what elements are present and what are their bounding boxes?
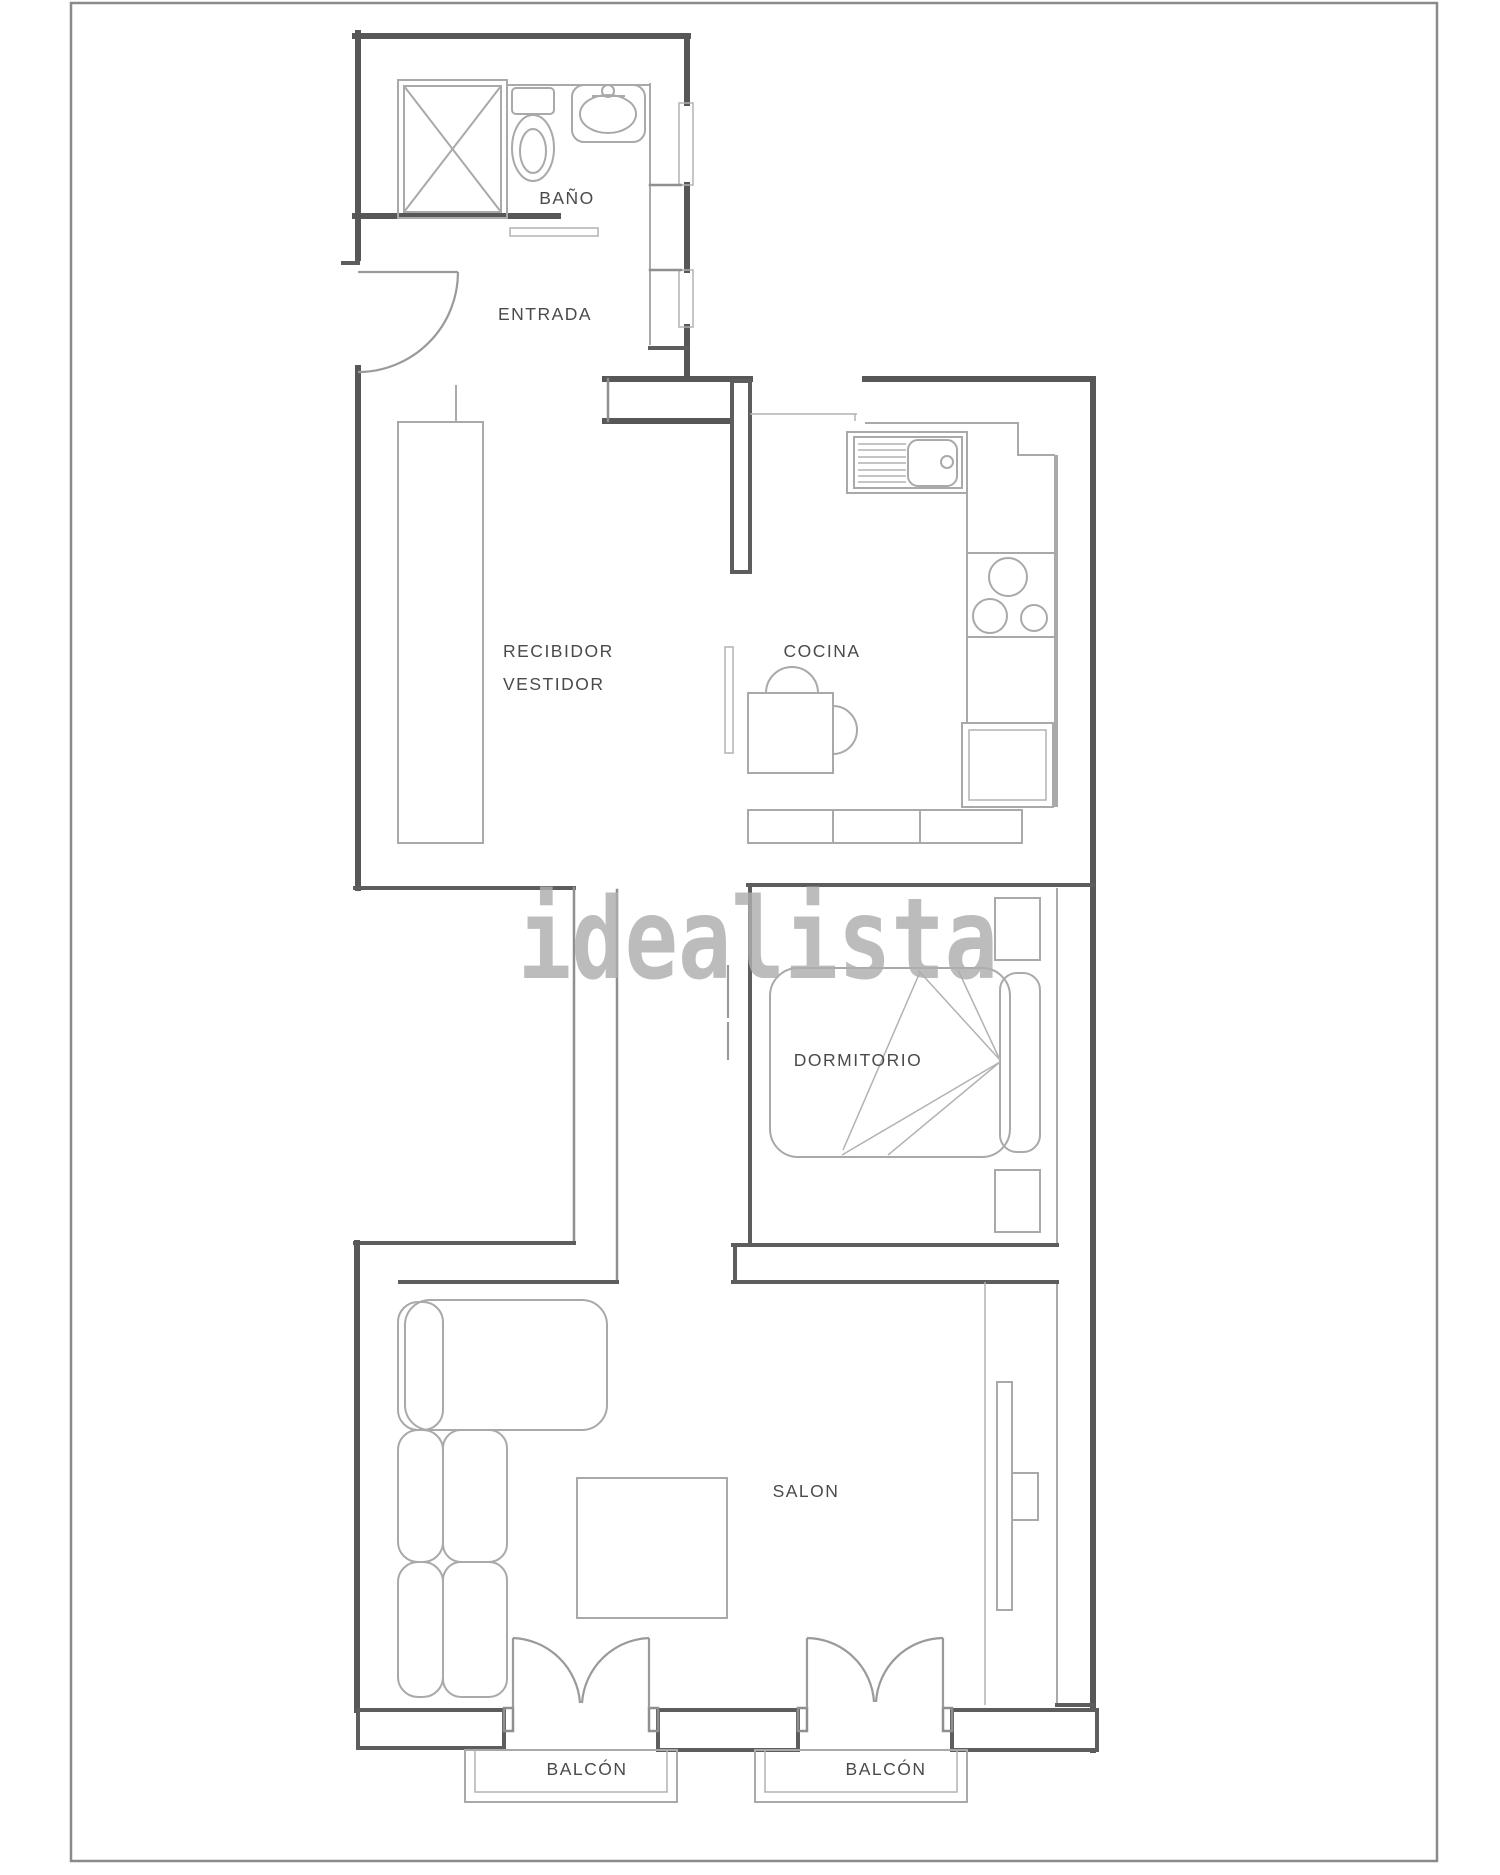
chair-top xyxy=(766,667,818,693)
room-label-vestidor: VESTIDOR xyxy=(503,674,604,694)
nightstand-top xyxy=(995,898,1040,960)
kitchen-sink xyxy=(847,432,967,493)
coffee-table xyxy=(577,1478,727,1618)
stove-burners xyxy=(967,553,1055,637)
toilet xyxy=(512,88,554,181)
wall-block-bottom-right xyxy=(952,1710,1097,1750)
kitchen-fixtures xyxy=(748,423,1055,843)
room-label-entrada: ENTRADA xyxy=(498,304,592,324)
corner-sofa xyxy=(398,1300,607,1697)
room-label-cocina: COCINA xyxy=(783,641,860,661)
floorplan-page: BAÑO ENTRADA RECIBIDOR VESTIDOR COCINA D… xyxy=(0,0,1500,1875)
room-label-dormitorio: DORMITORIO xyxy=(794,1050,922,1070)
room-label-salon: SALON xyxy=(773,1481,840,1501)
washbasin xyxy=(572,85,645,142)
window-bottom xyxy=(679,270,693,327)
bathroom-threshold xyxy=(510,228,598,236)
room-label-recibidor: RECIBIDOR xyxy=(503,641,614,661)
room-label-balcon-left: BALCÓN xyxy=(547,1758,628,1779)
idealista-watermark: idealista xyxy=(518,875,998,1005)
chair-right xyxy=(833,706,857,754)
window-top xyxy=(679,103,693,185)
balcony-french-doors-left xyxy=(513,1638,649,1708)
room-label-bano: BAÑO xyxy=(539,187,595,208)
recibidor-fixtures xyxy=(398,385,483,843)
balcony-french-doors-right xyxy=(807,1638,943,1708)
kitchen-table xyxy=(748,667,857,773)
wall-block xyxy=(732,381,750,572)
entry-door-arc xyxy=(358,272,458,372)
corridor-door-leaf xyxy=(725,647,733,753)
pillow xyxy=(1000,973,1040,1152)
kitchen-lower-counter xyxy=(748,810,1022,843)
nightstand-bottom xyxy=(995,1170,1040,1232)
floorplan-svg: BAÑO ENTRADA RECIBIDOR VESTIDOR COCINA D… xyxy=(0,0,1500,1875)
shower xyxy=(398,80,507,218)
bathroom-fixtures xyxy=(398,80,645,218)
wardrobe xyxy=(398,422,483,843)
wall-block-bottom-left xyxy=(358,1710,504,1748)
wall-block-pier xyxy=(658,1710,798,1750)
oven xyxy=(962,723,1053,807)
tv-unit xyxy=(985,1282,1038,1705)
room-label-balcon-right: BALCÓN xyxy=(846,1758,927,1779)
